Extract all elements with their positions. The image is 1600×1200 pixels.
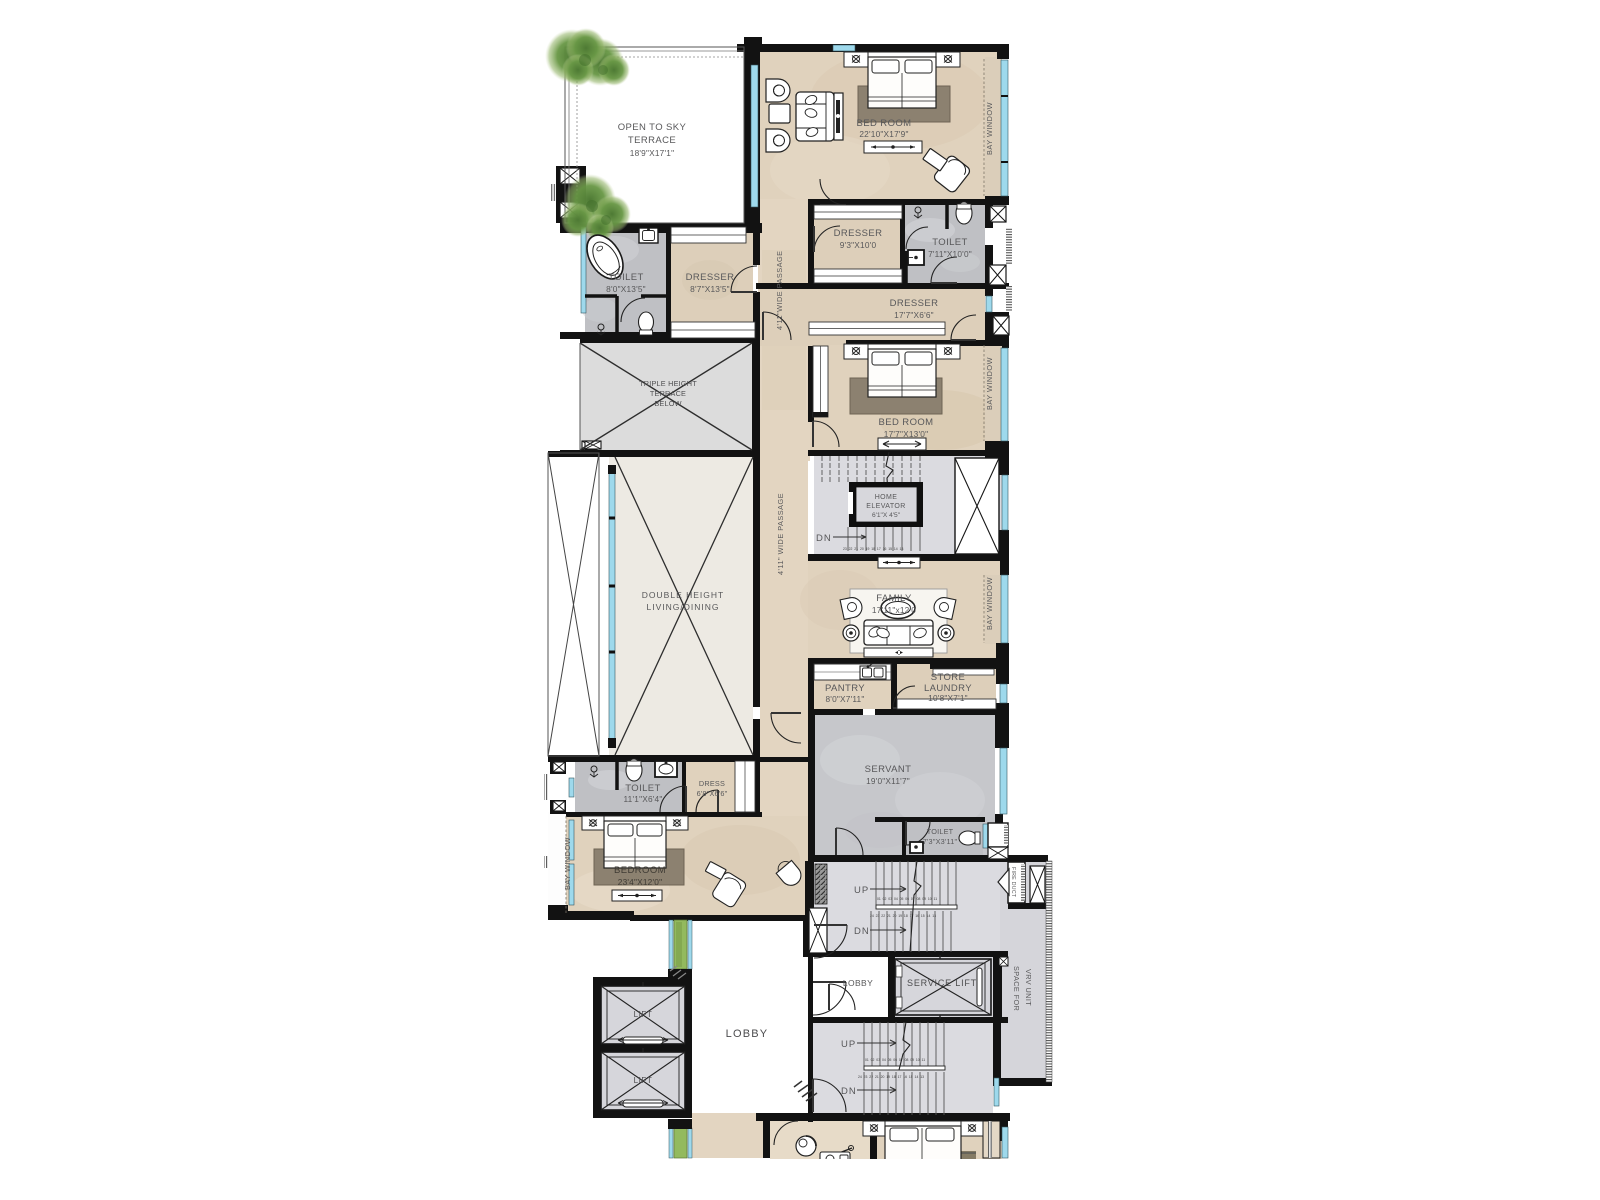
svg-text:11'1"X6'4": 11'1"X6'4" (623, 794, 662, 804)
svg-text:BAY WINDOW: BAY WINDOW (985, 577, 994, 630)
svg-text:TOILET: TOILET (927, 827, 954, 836)
svg-text:LIFT: LIFT (634, 1010, 653, 1019)
svg-text:OPEN TO SKY: OPEN TO SKY (618, 122, 687, 133)
svg-text:19'0"X11'7": 19'0"X11'7" (866, 776, 910, 786)
svg-text:TERRACE: TERRACE (628, 135, 676, 146)
svg-text:01 02 03 04 05 06 07 08: 01 02 03 04 05 06 07 08 09 10 11 (877, 897, 937, 901)
svg-text:DRESSER: DRESSER (686, 272, 735, 283)
svg-text:FAMILY: FAMILY (876, 593, 912, 604)
svg-text:24 23 22 21 20 19 18 17: 24 23 22 21 20 19 18 17 16 15 14 13 (858, 1075, 924, 1079)
svg-text:UP: UP (854, 885, 869, 896)
svg-text:DRESSER: DRESSER (834, 228, 883, 239)
svg-text:TRIPLE HEIGHT: TRIPLE HEIGHT (639, 379, 697, 388)
svg-text:HOME: HOME (875, 494, 898, 501)
svg-text:BELOW: BELOW (654, 399, 681, 408)
svg-text:SERVICE LIFT: SERVICE LIFT (907, 978, 977, 988)
svg-text:6'8"X6'6": 6'8"X6'6" (697, 789, 728, 798)
svg-text:ELEVATOR: ELEVATOR (866, 503, 905, 510)
svg-text:BAY WINDOW: BAY WINDOW (985, 357, 994, 410)
svg-text:TOILET: TOILET (932, 237, 967, 248)
svg-text:4'11"WIDE PASSAGE: 4'11"WIDE PASSAGE (775, 250, 784, 330)
svg-text:8'7"X13'5": 8'7"X13'5" (690, 284, 730, 294)
svg-text:18'9"X17'1": 18'9"X17'1" (630, 148, 674, 158)
svg-text:7'3"X3'11": 7'3"X3'11" (923, 837, 958, 846)
svg-text:BEDROOM: BEDROOM (614, 865, 666, 876)
svg-text:TOILET: TOILET (608, 272, 643, 283)
svg-text:22'10"X17'9": 22'10"X17'9" (859, 129, 908, 139)
svg-text:DN: DN (854, 926, 870, 937)
svg-text:LIFT: LIFT (634, 1076, 653, 1085)
svg-text:17'7"X6'6": 17'7"X6'6" (894, 310, 934, 320)
svg-text:TOILET: TOILET (625, 783, 660, 794)
svg-text:BED ROOM: BED ROOM (857, 118, 912, 129)
svg-text:FIRE DUCT: FIRE DUCT (1010, 867, 1016, 898)
svg-text:01 02 03 04 05 06 07 08: 01 02 03 04 05 06 07 08 09 10 11 (865, 1058, 925, 1062)
svg-text:LOBBY: LOBBY (726, 1028, 769, 1040)
svg-text:17'7"X13'0": 17'7"X13'0" (884, 429, 928, 439)
svg-text:8'0"X7'11": 8'0"X7'11" (825, 694, 864, 704)
svg-text:DN: DN (816, 533, 832, 544)
svg-text:23 22 21 20 19 18 17 16: 23 22 21 20 19 18 17 16 15 14 13 (843, 547, 903, 551)
svg-text:STORE: STORE (931, 672, 966, 683)
svg-text:SERVANT: SERVANT (865, 764, 912, 775)
svg-text:DRESS: DRESS (699, 779, 725, 788)
svg-text:17'11"x12'0: 17'11"x12'0 (872, 605, 916, 615)
svg-text:LOBBY: LOBBY (843, 978, 873, 988)
svg-text:DN: DN (841, 1086, 857, 1097)
svg-text:BAY WINDOW: BAY WINDOW (563, 837, 572, 890)
svg-text:DOUBLE HEIGHT: DOUBLE HEIGHT (642, 590, 724, 600)
svg-text:DRESSER: DRESSER (890, 298, 939, 309)
svg-text:TERRACE: TERRACE (650, 389, 686, 398)
svg-text:LIVING/DINING: LIVING/DINING (647, 602, 720, 612)
svg-text:BAY WINDOW: BAY WINDOW (985, 102, 994, 155)
svg-text:UP: UP (841, 1039, 856, 1050)
svg-text:9'3"X10'0: 9'3"X10'0 (840, 240, 877, 250)
svg-text:6'1"X 4'5": 6'1"X 4'5" (872, 512, 901, 519)
svg-text:4'11" WIDE PASSAGE: 4'11" WIDE PASSAGE (776, 493, 785, 575)
svg-text:7'11"X10'0": 7'11"X10'0" (928, 249, 972, 259)
svg-text:10'8"X7'1": 10'8"X7'1" (928, 693, 968, 703)
svg-text:PANTRY: PANTRY (825, 683, 865, 694)
svg-text:23'4"X12'0": 23'4"X12'0" (618, 877, 662, 887)
svg-text:SPACE FOR: SPACE FOR (1012, 966, 1021, 1011)
svg-text:8'0"X13'5": 8'0"X13'5" (606, 284, 646, 294)
svg-text:BED ROOM: BED ROOM (879, 417, 934, 428)
svg-text:VRV UNIT: VRV UNIT (1024, 969, 1033, 1006)
